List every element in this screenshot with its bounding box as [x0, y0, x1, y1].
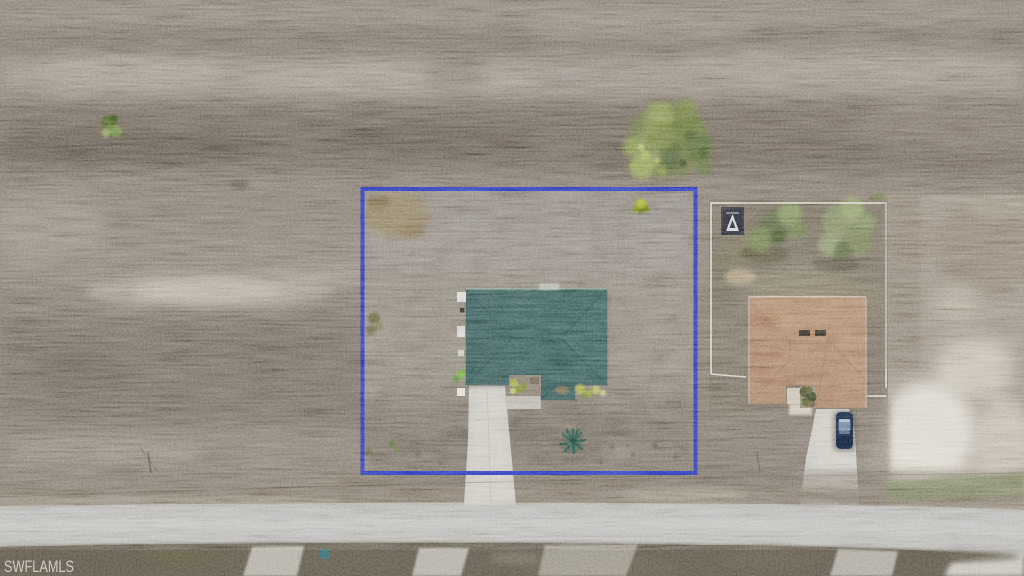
svg-text:SWFLAMLS: SWFLAMLS	[4, 558, 74, 576]
